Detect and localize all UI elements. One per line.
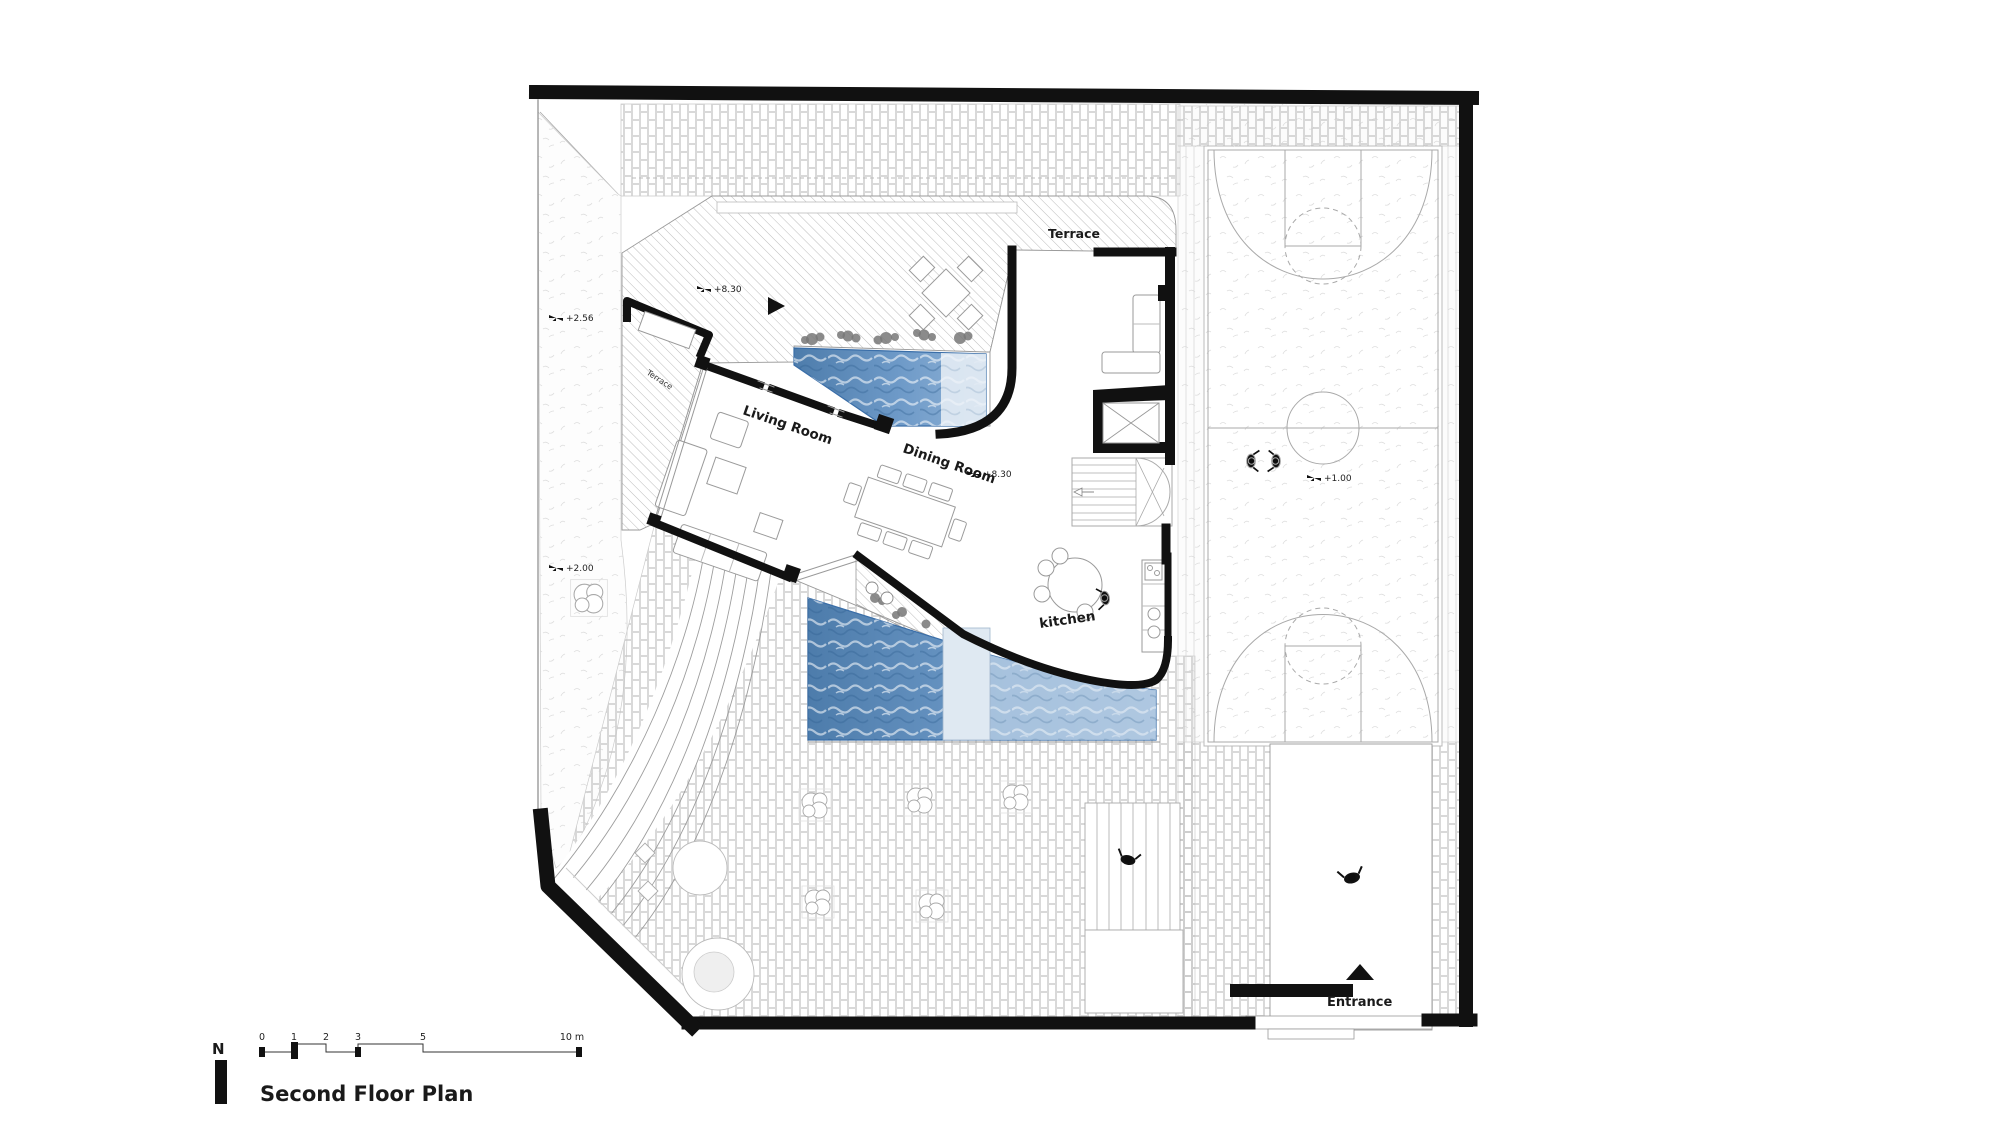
entrance-label: Entrance	[1327, 995, 1392, 1010]
interior-stair	[1072, 458, 1172, 526]
floor-plan-page: Terrace Terrace Living Room Dining Room …	[0, 0, 2000, 1126]
scale-tick-1: 1	[291, 1032, 297, 1043]
terrace-main-label: Terrace	[1048, 226, 1100, 241]
scale-tick-3: 3	[355, 1032, 361, 1043]
scale-tick-2: 2	[323, 1032, 329, 1043]
plan-title: Second Floor Plan	[260, 1082, 473, 1106]
scale-tick-0: 0	[259, 1032, 265, 1043]
terrace-planter	[717, 202, 1017, 213]
north-indicator: N	[212, 1040, 227, 1104]
kitchen-counter	[1142, 560, 1166, 652]
level-garden-lower: +2.00	[566, 564, 594, 574]
level-garden-upper: +2.56	[566, 314, 594, 324]
plaza-stair	[1085, 803, 1183, 1013]
title-block: N 0 1 2 3 5 10 m Second Floor Plan	[212, 1032, 584, 1106]
scale-tick-10m: 10 m	[560, 1032, 584, 1043]
basketball-court	[1178, 146, 1456, 746]
floor-plan-canvas: Terrace Terrace Living Room Dining Room …	[0, 0, 2000, 1126]
level-court: +1.00	[1324, 474, 1352, 484]
level-terrace: +8.30	[714, 285, 742, 295]
scale-bar: 0 1 2 3 5 10 m	[259, 1032, 584, 1059]
north-label: N	[212, 1040, 225, 1058]
scale-tick-5: 5	[420, 1032, 426, 1043]
level-dining: +8.30	[984, 470, 1012, 480]
north-arrow-icon	[215, 1060, 227, 1104]
